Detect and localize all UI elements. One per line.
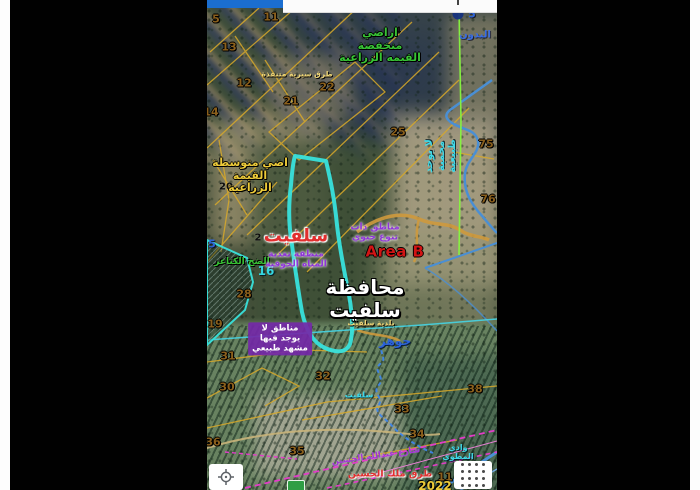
crosshair-icon <box>217 468 235 486</box>
status-bar-white <box>283 0 497 13</box>
hatched-zone <box>207 240 253 345</box>
status-bar-blue <box>207 0 283 8</box>
letterbox-left <box>10 0 207 490</box>
map-overlay-lines <box>207 0 497 490</box>
survey-line-green <box>459 8 461 255</box>
locate-button[interactable] <box>209 464 243 490</box>
status-bar-cursor <box>457 0 459 5</box>
roads-orange <box>207 215 489 448</box>
parcel-lines <box>207 2 497 460</box>
grid-icon <box>461 463 485 487</box>
legend-chip <box>287 480 305 490</box>
map-canvas[interactable]: 5111312222114257576281931303233383635341… <box>207 0 497 490</box>
apps-grid-button[interactable] <box>454 461 492 489</box>
letterbox-right <box>497 0 690 490</box>
